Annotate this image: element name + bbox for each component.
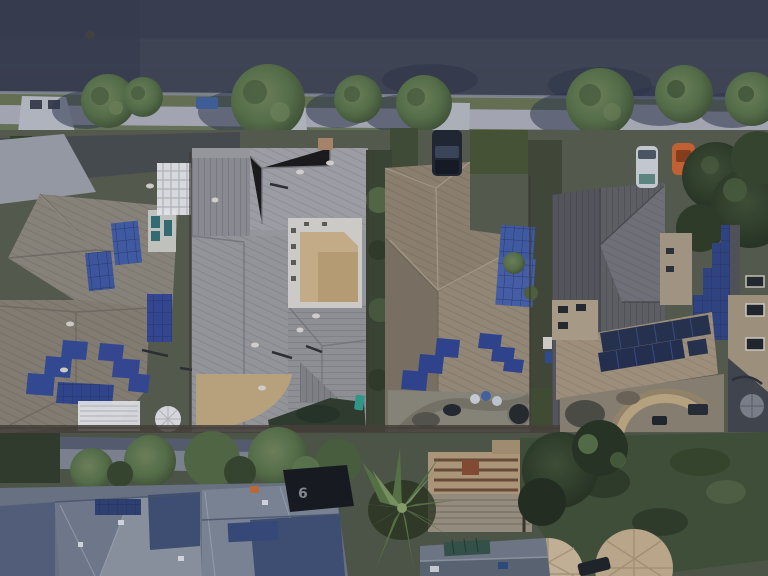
aerial-photo-canvas: 6 [0,0,768,576]
haze-overlay [0,0,768,576]
aerial-photo: 6 [0,0,768,576]
